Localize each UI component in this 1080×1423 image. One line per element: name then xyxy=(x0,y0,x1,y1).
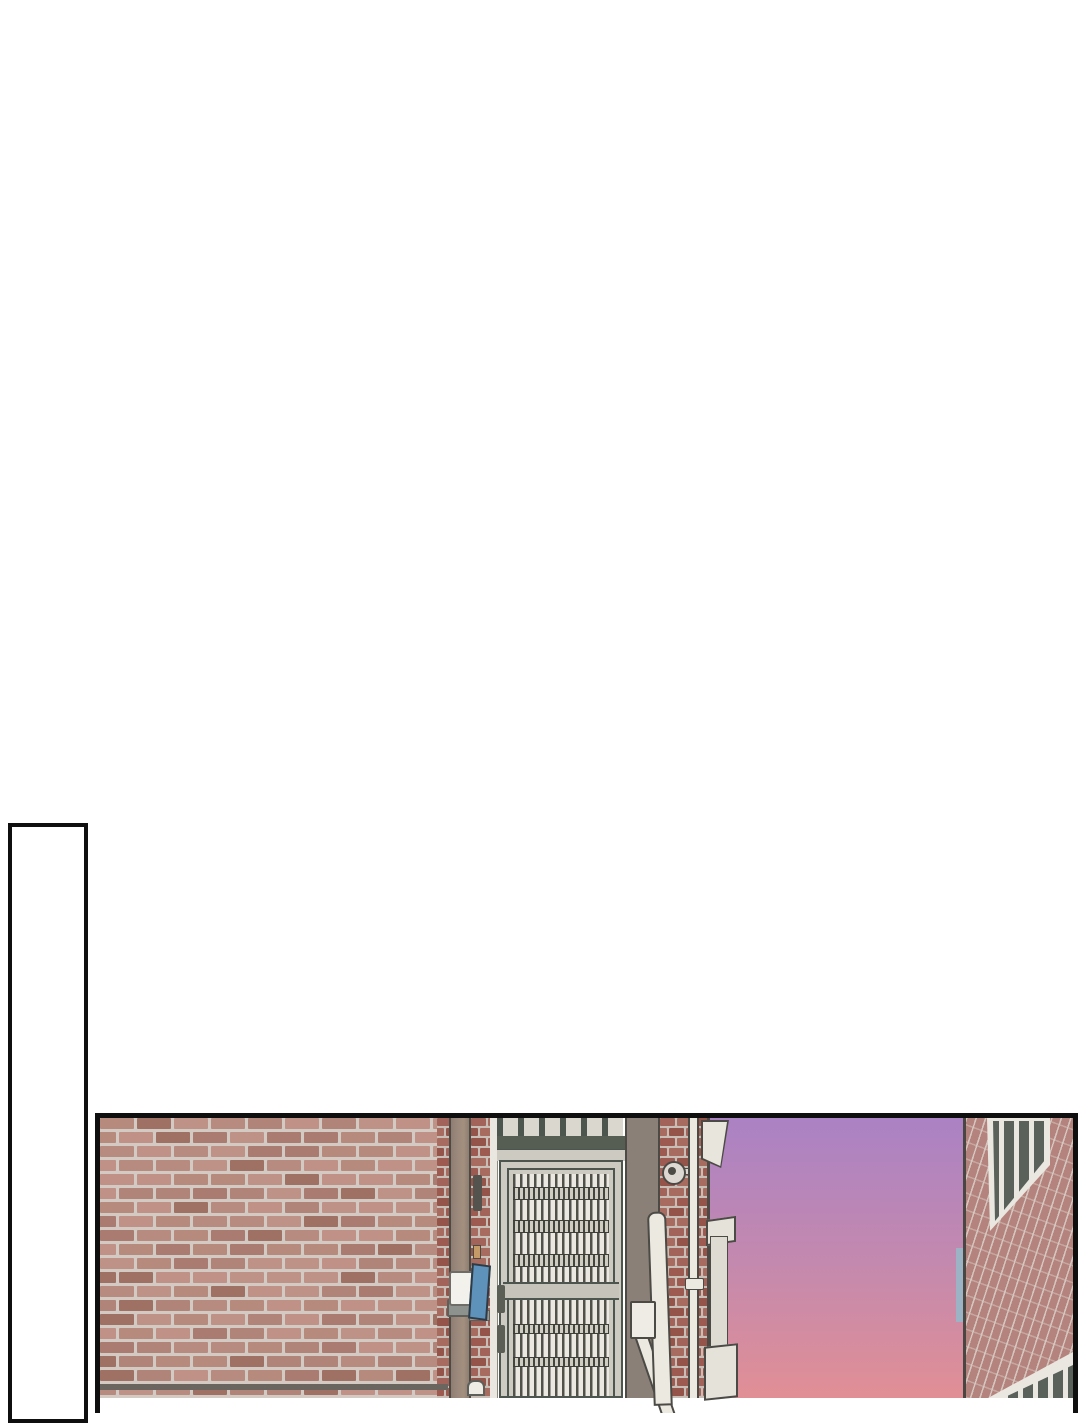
gate-link-band xyxy=(513,1324,609,1334)
gate-hinge xyxy=(497,1325,505,1353)
ledge-cap-bottom xyxy=(704,1343,738,1401)
gate-top-beam xyxy=(497,1136,625,1149)
gate-bars-lower xyxy=(513,1300,609,1396)
blue-sign-plate xyxy=(468,1263,491,1321)
neighbor-brick-building xyxy=(963,1118,1073,1398)
ground-strip xyxy=(100,1384,448,1390)
camera-lens xyxy=(668,1167,676,1175)
window-glass xyxy=(984,1118,1054,1234)
wooden-door-post xyxy=(449,1118,471,1398)
red-brick-pilaster xyxy=(437,1118,449,1398)
comic-page: { "page": { "kind": "webtoon comic page,… xyxy=(0,0,1080,1389)
window-glass xyxy=(988,1344,1073,1398)
gate-hinge xyxy=(497,1285,505,1313)
building-window-top xyxy=(984,1118,1054,1234)
gate-link-band xyxy=(513,1254,609,1267)
gate-bars-upper xyxy=(513,1174,609,1282)
hinge-bracket xyxy=(473,1175,482,1211)
gate-transom-grille xyxy=(497,1118,623,1136)
gate-link-band xyxy=(513,1357,609,1367)
bollard-cap xyxy=(467,1380,485,1396)
building-window-bottom xyxy=(988,1344,1073,1398)
pink-brick-wall xyxy=(100,1118,437,1398)
alley-panel-content xyxy=(100,1118,1073,1413)
alley-comic-panel xyxy=(95,1113,1078,1413)
drain-pipe-thin xyxy=(688,1118,699,1398)
latch-detail xyxy=(473,1245,481,1259)
gate-link-band xyxy=(513,1220,609,1233)
security-camera xyxy=(662,1161,686,1185)
intercom-box xyxy=(630,1301,656,1339)
gate-inner-frame xyxy=(507,1168,615,1396)
security-gate xyxy=(490,1118,625,1398)
pipe-joint xyxy=(685,1278,704,1290)
gate-frame xyxy=(499,1160,623,1398)
empty-comic-panel xyxy=(8,823,88,1423)
gate-middle-rail xyxy=(503,1282,619,1300)
gate-link-band xyxy=(513,1187,609,1200)
